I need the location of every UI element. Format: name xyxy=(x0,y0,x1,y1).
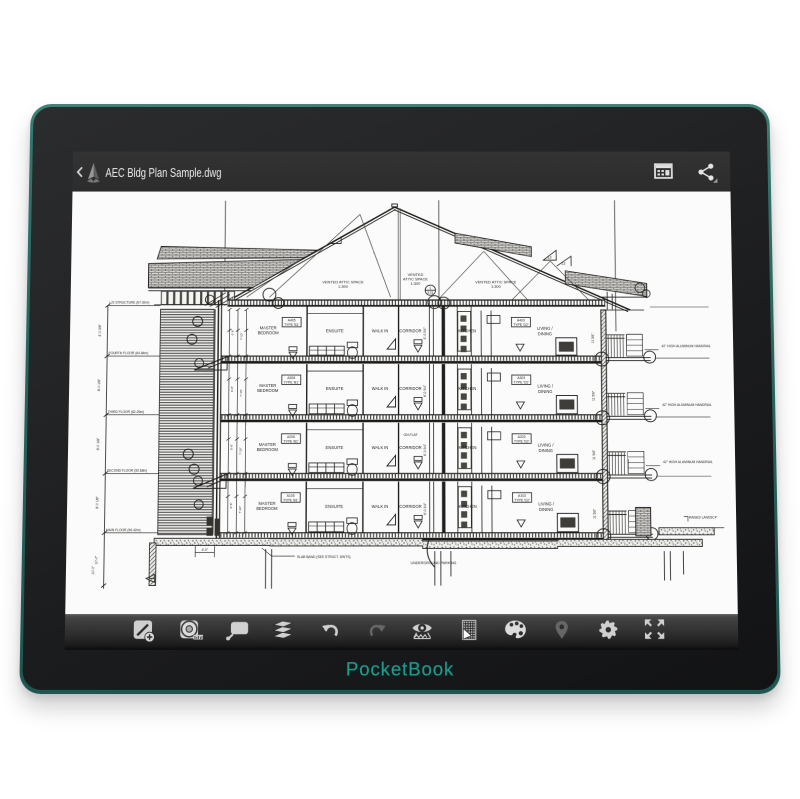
svg-text:WALK IN: WALK IN xyxy=(371,386,388,391)
svg-text:8'-0 1/8": 8'-0 1/8" xyxy=(95,495,99,508)
svg-text:6'-8": 6'-8" xyxy=(228,502,232,508)
svg-text:42" HIGH ALUMINUM HANDRAIL: 42" HIGH ALUMINUM HANDRAIL xyxy=(662,403,712,407)
svg-text:6'-8": 6'-8" xyxy=(229,444,233,450)
svg-text:DINING: DINING xyxy=(538,448,552,453)
svg-text:TYPE 'D2': TYPE 'D2' xyxy=(514,498,530,502)
svg-text:KITCHEN: KITCHEN xyxy=(458,445,476,450)
svg-text:MAIN FLOOR (56.42m): MAIN FLOOR (56.42m) xyxy=(105,528,140,532)
svg-text:1:300: 1:300 xyxy=(338,285,348,289)
svg-text:FOURTH FLOOR (64.84m): FOURTH FLOOR (64.84m) xyxy=(108,351,148,355)
svg-text:TYPE 'B1': TYPE 'B1' xyxy=(283,381,299,385)
svg-text:THIRD FLOOR (62.26m): THIRD FLOOR (62.26m) xyxy=(107,410,143,414)
svg-text:SECOND FLOOR (59.68m): SECOND FLOOR (59.68m) xyxy=(106,469,146,473)
svg-text:12: 12 xyxy=(561,261,565,266)
svg-text:8'-0 1/8": 8'-0 1/8" xyxy=(97,378,101,391)
svg-text:11 5/8": 11 5/8" xyxy=(591,390,595,401)
svg-text:VENTED: VENTED xyxy=(407,273,423,277)
svg-text:SLAB BAND (SEE STRUCT. DWTS): SLAB BAND (SEE STRUCT. DWTS) xyxy=(296,555,350,559)
svg-text:KITCHEN: KITCHEN xyxy=(458,504,476,509)
svg-text:8'-0 1/8": 8'-0 1/8" xyxy=(96,437,100,450)
svg-text:1:300: 1:300 xyxy=(410,282,420,286)
svg-text:KITCHEN: KITCHEN xyxy=(458,386,476,391)
svg-text:10'-0": 10'-0" xyxy=(91,565,95,575)
svg-text:10'-0": 10'-0" xyxy=(94,555,98,565)
svg-text:CORRIDOR: CORRIDOR xyxy=(399,504,421,509)
svg-text:LIVING /: LIVING / xyxy=(537,442,554,447)
svg-text:11 5/8": 11 5/8" xyxy=(592,508,596,519)
svg-text:TYPE 'B1': TYPE 'B1' xyxy=(283,439,299,443)
svg-text:BEDROOM: BEDROOM xyxy=(257,330,279,335)
svg-text:LIVING /: LIVING / xyxy=(536,326,552,331)
svg-text:6'-0 3/4": 6'-0 3/4" xyxy=(422,326,426,339)
svg-text:TYPE 'D2': TYPE 'D2' xyxy=(513,323,529,327)
svg-text:LIVING /: LIVING / xyxy=(538,501,555,506)
svg-text:ENSUITE: ENSUITE xyxy=(325,386,343,391)
svg-text:4'-0": 4'-0" xyxy=(201,548,207,552)
svg-text:DINING: DINING xyxy=(537,331,551,336)
svg-text:WALK IN: WALK IN xyxy=(371,504,388,509)
svg-text:WALK IN: WALK IN xyxy=(371,445,388,450)
svg-text:7'-10": 7'-10" xyxy=(239,332,243,340)
svg-text:WALK IN: WALK IN xyxy=(371,328,388,333)
svg-text:TYPE 'B1': TYPE 'B1' xyxy=(284,323,300,327)
svg-text:8'-0 3/4": 8'-0 3/4" xyxy=(97,323,101,336)
svg-text:LIVING /: LIVING / xyxy=(537,383,554,388)
svg-text:11 5/8": 11 5/8" xyxy=(591,332,595,343)
svg-text:6'-0 3/4": 6'-0 3/4" xyxy=(423,443,427,456)
svg-text:6'-0 3/4": 6'-0 3/4" xyxy=(423,502,427,515)
svg-text:6'-0 3/4": 6'-0 3/4" xyxy=(422,384,426,397)
svg-text:L/S STRUCTURE (67.30m): L/S STRUCTURE (67.30m) xyxy=(109,301,149,305)
svg-text:ENSUITE: ENSUITE xyxy=(326,328,344,333)
svg-text:ENSUITE: ENSUITE xyxy=(325,445,343,450)
svg-text:BEDROOM: BEDROOM xyxy=(256,506,278,511)
svg-text:11 5/8": 11 5/8" xyxy=(592,449,596,460)
svg-text:RAISED LANDSCP: RAISED LANDSCP xyxy=(688,516,716,520)
svg-text:12: 12 xyxy=(547,255,551,260)
svg-text:CORRIDOR: CORRIDOR xyxy=(399,386,421,391)
svg-text:6'-8": 6'-8" xyxy=(230,329,234,335)
svg-text:1: 1 xyxy=(429,286,431,290)
svg-text:ON FLAT: ON FLAT xyxy=(403,433,417,437)
svg-text:CORRIDOR: CORRIDOR xyxy=(399,328,421,333)
svg-text:7'-10": 7'-10" xyxy=(237,506,241,514)
svg-text:BEDROOM: BEDROOM xyxy=(256,447,278,452)
svg-text:42" HIGH ALUMINUM HANDRAIL: 42" HIGH ALUMINUM HANDRAIL xyxy=(661,344,711,348)
svg-text:TYPE 'B1': TYPE 'B1' xyxy=(282,498,298,502)
svg-text:VENTED ATTIC SPACE: VENTED ATTIC SPACE xyxy=(475,280,517,284)
svg-text:DINING: DINING xyxy=(538,507,552,512)
svg-text:TYPE 'D2': TYPE 'D2' xyxy=(513,439,529,443)
svg-text:TYPE 'D2': TYPE 'D2' xyxy=(513,381,529,385)
svg-text:1:300: 1:300 xyxy=(491,285,501,289)
svg-text:ENSUITE: ENSUITE xyxy=(325,504,343,509)
svg-text:7'-10": 7'-10" xyxy=(238,389,242,397)
svg-text:ATTIC SPACE: ATTIC SPACE xyxy=(403,277,428,281)
svg-text:42" HIGH ALUMINUM HANDRAIL: 42" HIGH ALUMINUM HANDRAIL xyxy=(663,460,713,464)
svg-text:VENTED ATTIC SPACE: VENTED ATTIC SPACE xyxy=(322,280,364,284)
svg-text:CORRIDOR: CORRIDOR xyxy=(399,445,421,450)
svg-text:7'-10": 7'-10" xyxy=(238,447,242,455)
svg-text:KITCHEN: KITCHEN xyxy=(458,328,476,333)
svg-text:3.01: 3.01 xyxy=(427,291,433,295)
svg-text:UNDERGROUND PARKING: UNDERGROUND PARKING xyxy=(410,561,456,565)
svg-text:BEDROOM: BEDROOM xyxy=(257,388,279,393)
svg-text:DINING: DINING xyxy=(538,389,552,394)
svg-text:6'-8": 6'-8" xyxy=(229,386,233,392)
